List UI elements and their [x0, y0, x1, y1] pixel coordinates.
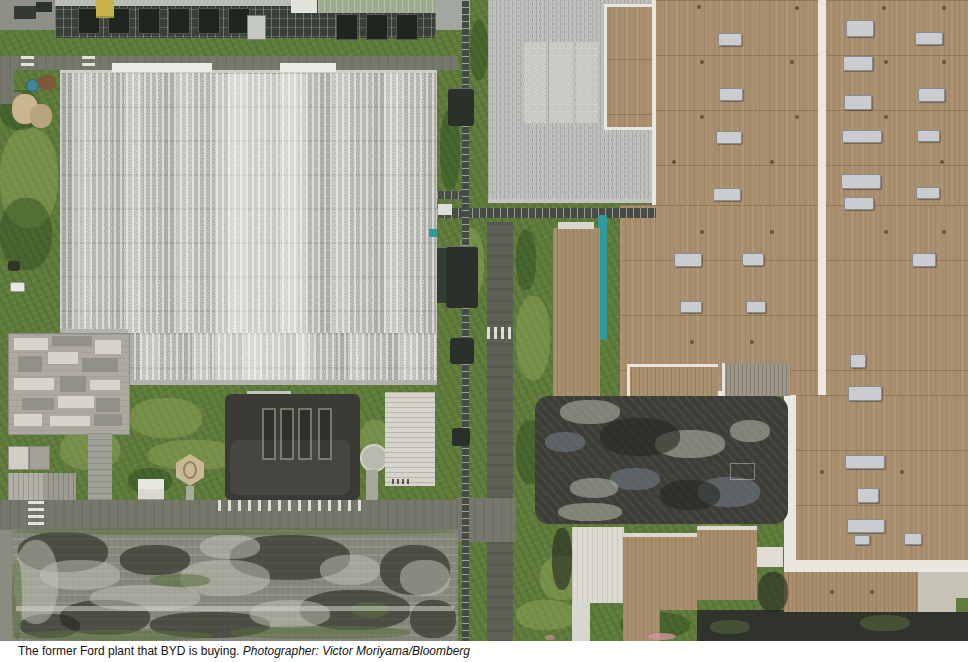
road-vertical — [487, 222, 513, 641]
parking-wear — [230, 440, 350, 495]
green-roof-strip — [318, 0, 436, 13]
shed — [29, 446, 50, 470]
tan-roof-south — [796, 395, 968, 560]
roof-tab — [112, 63, 212, 72]
roof-parapet-south — [784, 560, 968, 572]
white-connector — [757, 547, 783, 567]
yellow-shed-roof — [96, 0, 114, 18]
article-figure: The former Ford plant that BYD is buying… — [0, 0, 968, 662]
grass-patch — [0, 128, 58, 228]
rack-equipment — [448, 88, 474, 126]
caption-text-wrap: The former Ford plant that BYD is buying… — [18, 641, 470, 661]
moss-tuft — [710, 620, 750, 634]
roof-panel — [576, 42, 598, 123]
dark-object — [8, 261, 20, 271]
pad-path — [366, 470, 378, 500]
gazebo — [176, 454, 204, 486]
grass-notch — [956, 598, 968, 612]
rack-equipment — [446, 246, 478, 308]
gray-ridged-roof — [722, 363, 790, 396]
expansion-joint — [16, 606, 454, 611]
edge-strip — [0, 530, 12, 641]
caption-text: The former Ford plant that BYD is buying… — [18, 644, 239, 658]
narrow-building-shade — [44, 473, 76, 502]
moss-tuft — [860, 615, 910, 631]
roof-seam — [652, 0, 656, 205]
road-top — [0, 56, 458, 70]
grass-patch — [130, 398, 202, 438]
roof-panel — [524, 42, 546, 123]
parked-vehicle — [10, 282, 25, 292]
concrete-circle-pad — [360, 444, 388, 472]
roof-tab — [280, 63, 336, 72]
worn-concrete-lot — [12, 530, 458, 641]
small-gray-shed — [247, 15, 266, 40]
pipe-bridge — [437, 208, 656, 218]
pink-flower-patch — [545, 635, 555, 640]
cluster-tan-building-b — [697, 530, 757, 600]
rack-equipment — [450, 338, 474, 364]
cluster-tan-building-a — [623, 537, 697, 610]
roof-shade-west — [60, 72, 82, 333]
rooftop-strip — [55, 0, 303, 6]
crosswalk — [487, 327, 513, 339]
grass-patch — [470, 20, 488, 80]
crosswalk — [82, 56, 95, 70]
crosswalk — [21, 56, 34, 70]
faded-marking — [730, 463, 755, 480]
grass-patch — [516, 296, 550, 380]
rust-debris — [38, 75, 56, 90]
building-vent-row — [392, 479, 412, 484]
walk-path — [88, 433, 112, 501]
pink-flower-patch — [648, 633, 676, 640]
roof-parapet — [488, 199, 654, 203]
white-building — [385, 392, 435, 486]
white-strip-building — [572, 603, 590, 641]
tan-roof-inset — [604, 4, 652, 130]
white-annex-small — [438, 204, 452, 215]
asphalt-blotch — [552, 528, 572, 590]
roof-bright-section — [215, 74, 307, 380]
grass-patch — [516, 600, 576, 630]
patchwork-building-roof — [8, 333, 130, 435]
roof-parapet — [128, 380, 437, 385]
roof-cap — [558, 222, 594, 229]
roof-seam — [818, 0, 826, 396]
equipment-block — [14, 6, 36, 19]
rack-equipment — [452, 428, 470, 446]
grass-patch — [0, 198, 52, 270]
grass-patch — [516, 230, 536, 290]
white-l-building — [572, 527, 624, 603]
give-way-markings — [218, 500, 368, 511]
photo-caption: The former Ford plant that BYD is buying… — [0, 641, 968, 662]
sand-patch — [30, 104, 52, 128]
catwalk — [437, 191, 463, 199]
caption-credit: Photographer: Victor Moriyama/Bloomberg — [243, 644, 470, 658]
tan-roof-north — [654, 0, 968, 205]
center-building-long — [553, 228, 600, 398]
teal-dot — [429, 229, 437, 237]
equipment-block — [36, 2, 52, 12]
white-shed-roof — [291, 0, 317, 13]
white-shed — [138, 479, 164, 500]
roof-panel — [549, 42, 573, 123]
asphalt-yard — [535, 396, 788, 524]
aerial-photo — [0, 0, 968, 641]
crosswalk — [28, 501, 44, 529]
shed — [8, 446, 29, 470]
